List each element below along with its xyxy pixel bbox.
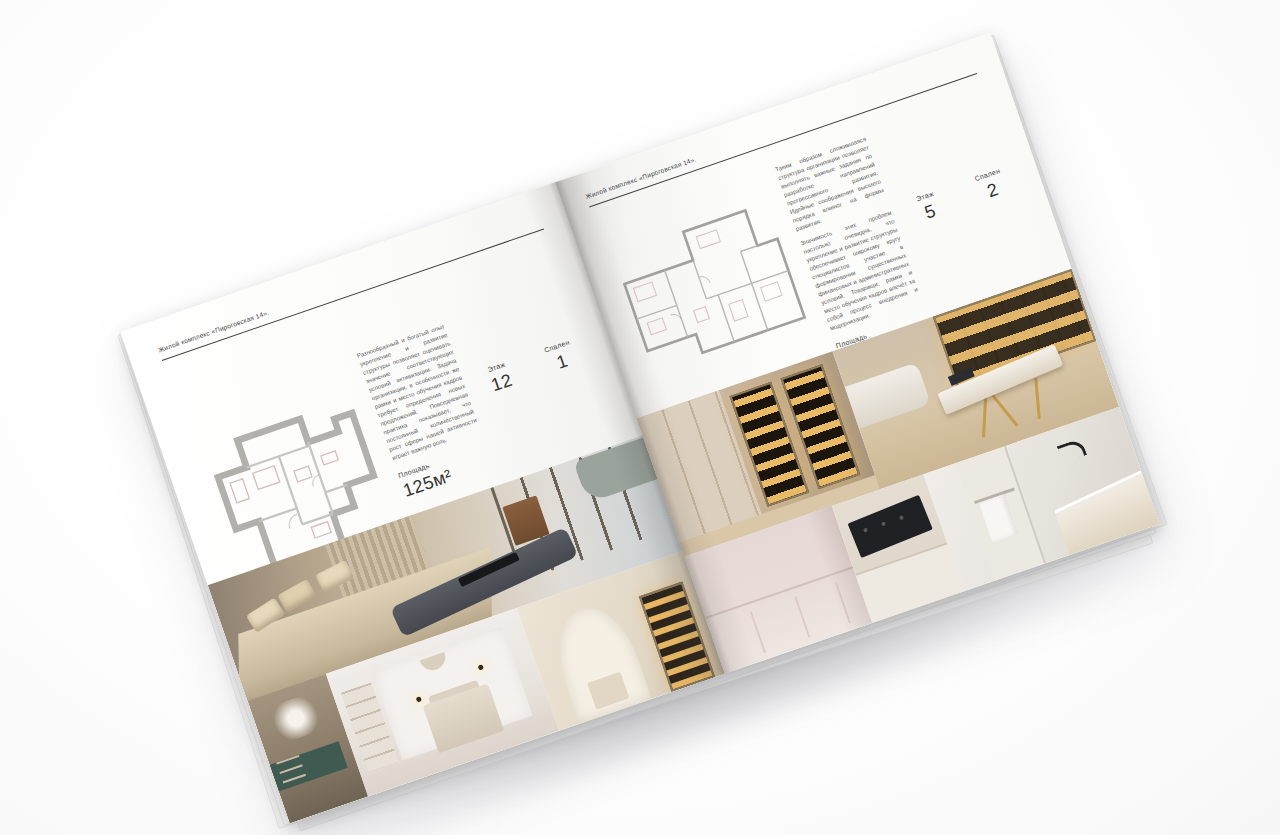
scene: Жилой комплекс «Пироговская 14». bbox=[0, 0, 1280, 835]
wall-panel-shape bbox=[750, 612, 766, 653]
wall-panel-shape bbox=[794, 597, 810, 638]
flowers-shape bbox=[266, 692, 326, 745]
magazine-spread: Жилой комплекс «Пироговская 14». bbox=[120, 32, 1159, 823]
gold-desk-leg-shape bbox=[990, 393, 1018, 426]
gold-desk-leg-shape bbox=[1034, 378, 1040, 419]
daybed-shape bbox=[845, 362, 931, 428]
teal-console-shape bbox=[269, 741, 347, 792]
gold-desk-leg-shape bbox=[982, 396, 987, 437]
description-paragraph-2: Значимость этих проблем настолько очевид… bbox=[799, 209, 922, 334]
cooktop-shape bbox=[848, 495, 934, 558]
black-faucet-shape bbox=[1057, 438, 1087, 463]
